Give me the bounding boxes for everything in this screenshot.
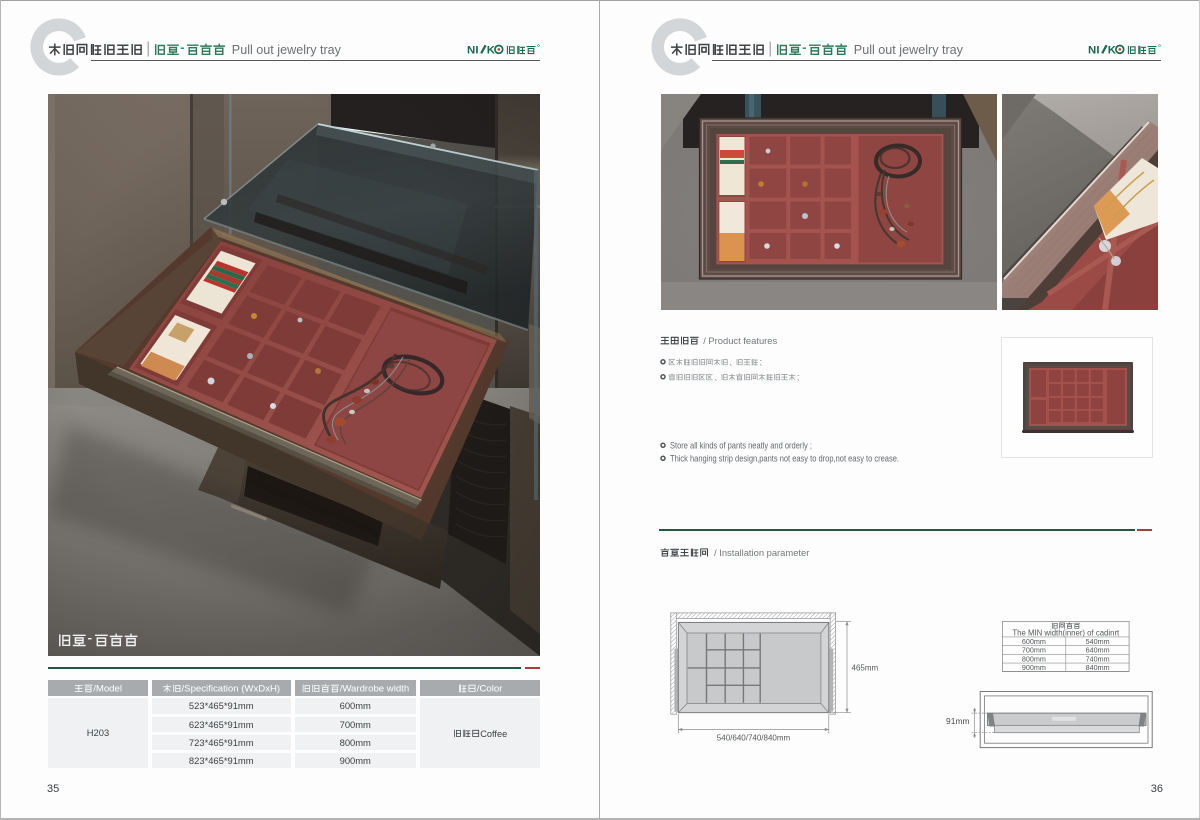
svg-text:Store all kinds of pants neatl: Store all kinds of pants neatly and orde… [670, 441, 812, 451]
svg-text:/Wardrobe width: /Wardrobe width [340, 683, 410, 694]
svg-text:540mm: 540mm [1086, 637, 1110, 646]
svg-text:/Model: /Model [93, 683, 122, 694]
svg-text:Coffee: Coffee [480, 729, 507, 739]
svg-text:540/640/740/840mm: 540/640/740/840mm [717, 734, 791, 743]
svg-text:840mm: 840mm [1086, 663, 1110, 672]
svg-text:465mm: 465mm [852, 664, 879, 673]
svg-text:/ Product features: / Product features [703, 335, 777, 346]
svg-text:900mm: 900mm [1022, 663, 1046, 672]
svg-text:640mm: 640mm [1086, 645, 1110, 654]
svg-text:740mm: 740mm [1086, 654, 1110, 663]
svg-text:600mm: 600mm [1022, 637, 1046, 646]
svg-text:800mm: 800mm [1022, 654, 1046, 663]
svg-text:/ Installation parameter: / Installation parameter [714, 547, 809, 558]
svg-text:700mm: 700mm [1022, 645, 1046, 654]
svg-text:Thick hanging strip design,pan: Thick hanging strip design,pants not eas… [670, 454, 899, 464]
svg-text:Pull out jewelry tray: Pull out jewelry tray [232, 43, 342, 57]
svg-text:/Color: /Color [477, 683, 503, 694]
svg-text:Pull out jewelry tray: Pull out jewelry tray [853, 43, 963, 57]
svg-text:NI: NI [1088, 45, 1100, 57]
svg-text:/Specification (WxDxH): /Specification (WxDxH) [182, 683, 281, 694]
svg-text:NI: NI [467, 45, 479, 57]
